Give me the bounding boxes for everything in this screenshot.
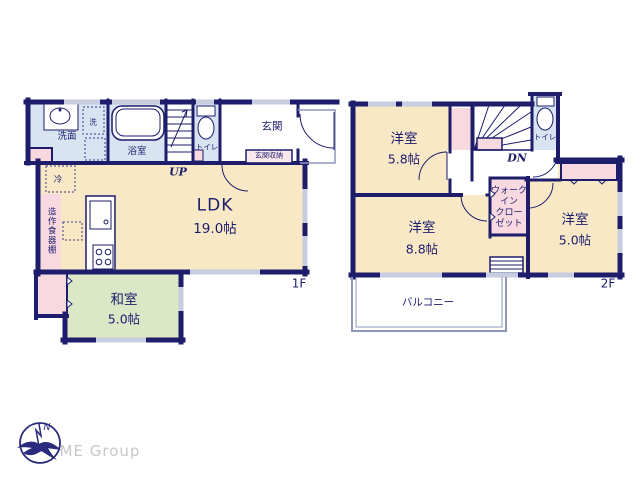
label-bedroom-5-8-size: 5.8帖 (388, 151, 420, 166)
label-washitsu-name: 和室 (111, 292, 138, 308)
compass-north-icon (17, 423, 61, 463)
washitsu-closet (36, 274, 67, 316)
label-washroom: 洗面 (57, 131, 76, 143)
label-stairs-up: UP (169, 165, 187, 178)
label-cupboard: 造作食器棚 (46, 207, 56, 255)
bird-silhouette-icon (17, 442, 61, 460)
stairs-landing (477, 138, 502, 150)
faucet-dot-icon (59, 109, 62, 112)
company-logo-text: ME Group (60, 442, 141, 460)
label-bedroom-8-8-name: 洋室 (409, 220, 436, 236)
bedroom-5-0-closet (561, 163, 617, 180)
hall-corridor (450, 180, 490, 195)
toilet-bowl-1f-icon (198, 117, 214, 139)
floorplan-page: 洗面 洗 浴室 トイレ 玄関 玄関収納 UP 冷 造作食器棚 LDK 19.0帖… (0, 0, 640, 480)
label-stairs-dn: DN (507, 151, 527, 164)
label-floor-2f: 2F (601, 277, 616, 292)
floorplan-drawing (0, 0, 640, 480)
label-toilet-2f: トイレ (534, 132, 557, 141)
label-walk-in-closet: ウォーク イン クロー ゼット (491, 186, 527, 230)
label-bedroom-5-8-name: 洋室 (391, 131, 418, 147)
label-refrigerator: 冷 (54, 175, 63, 185)
label-bedroom-5-0-size: 5.0帖 (559, 232, 591, 247)
label-balcony: バルコニー (402, 297, 454, 310)
label-laundry: 洗 (89, 117, 97, 126)
label-toilet-1f: トイレ (196, 142, 219, 151)
label-bathroom: 浴室 (127, 146, 146, 158)
toilet-tank-2f-icon (537, 97, 554, 106)
label-ldk-name: LDK (197, 196, 234, 217)
porch-area (298, 104, 335, 163)
label-entrance-storage: 玄関収納 (255, 152, 283, 161)
label-bedroom-8-8-size: 8.8帖 (406, 241, 438, 256)
label-bedroom-5-0-name: 洋室 (562, 212, 589, 228)
label-ldk-size: 19.0帖 (193, 221, 237, 237)
toilet-corner-cabinet (194, 150, 203, 161)
bedroom-5-8-closet (450, 108, 472, 152)
toilet-tank-1f-icon (197, 106, 215, 116)
label-entrance: 玄関 (262, 121, 283, 134)
room-ldk (38, 163, 305, 272)
label-floor-1f: 1F (292, 277, 307, 292)
label-washitsu-size: 5.0帖 (108, 311, 140, 326)
compass-north-letter: N (43, 422, 50, 434)
room-bedroom-5-8 (353, 105, 450, 195)
toilet-bowl-2f-icon (537, 108, 553, 130)
